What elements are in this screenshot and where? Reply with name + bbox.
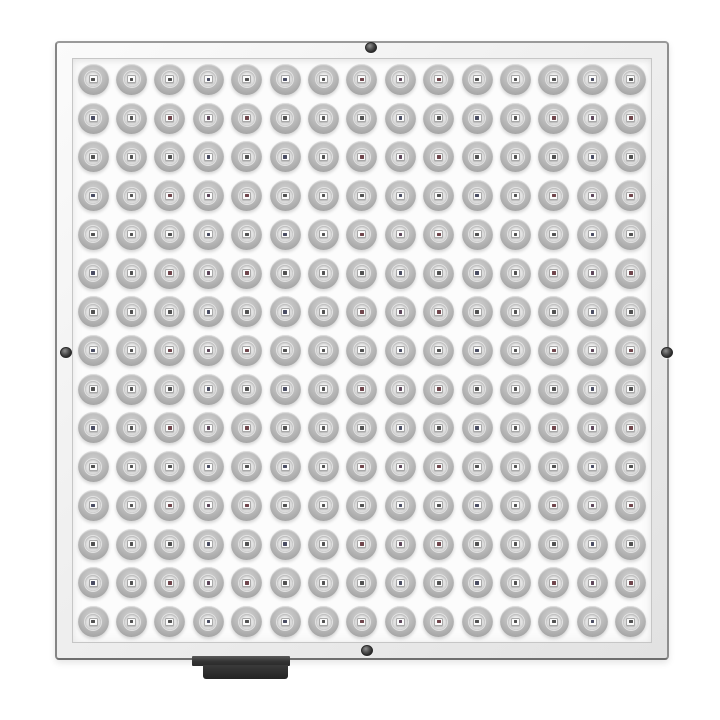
led-reflector-cup [231, 219, 262, 250]
led-well [546, 149, 562, 165]
led-cell [74, 409, 112, 448]
led-reflector-cup [538, 258, 569, 289]
led-cell [420, 254, 458, 293]
led-reflector-cup [615, 606, 646, 637]
led-chip [319, 540, 328, 548]
led-chip-die [168, 504, 172, 508]
led-chip [281, 114, 290, 122]
led-chip [242, 192, 251, 200]
led-chip-die [591, 194, 595, 198]
led-cell [573, 331, 611, 370]
led-chip [242, 346, 251, 354]
led-well [469, 71, 485, 87]
led-cell [535, 60, 573, 99]
led-chip [242, 153, 251, 161]
led-chip-die [283, 504, 287, 508]
led-well [508, 110, 524, 126]
led-cell [228, 254, 266, 293]
led-cell [420, 215, 458, 254]
led-chip-die [322, 620, 326, 624]
led-reflector-cup [270, 412, 301, 443]
led-well [431, 420, 447, 436]
led-chip-die [437, 620, 441, 624]
led-well [85, 342, 101, 358]
led-well [546, 497, 562, 513]
led-cell [304, 447, 342, 486]
led-chip [396, 424, 405, 432]
led-reflector-cup [231, 296, 262, 327]
led-well [85, 226, 101, 242]
led-chip-die [552, 542, 556, 546]
led-well [162, 381, 178, 397]
led-well [584, 381, 600, 397]
led-reflector-cup [270, 567, 301, 598]
led-cell [381, 331, 419, 370]
led-chip [204, 540, 213, 548]
led-reflector-cup [78, 64, 109, 95]
led-chip [434, 192, 443, 200]
led-cell [496, 331, 534, 370]
led-reflector-cup [270, 103, 301, 134]
led-reflector-cup [500, 529, 531, 560]
led-cell [189, 176, 227, 215]
led-reflector-cup [500, 103, 531, 134]
led-chip-die [207, 620, 211, 624]
led-cell [535, 602, 573, 641]
led-reflector-cup [154, 567, 185, 598]
led-chip-die [399, 194, 403, 198]
led-chip [396, 153, 405, 161]
led-well [431, 71, 447, 87]
led-reflector-cup [385, 180, 416, 211]
led-reflector-cup [193, 64, 224, 95]
led-cell [612, 602, 650, 641]
led-chip [204, 579, 213, 587]
led-well [200, 536, 216, 552]
led-cell [612, 176, 650, 215]
led-reflector-cup [500, 180, 531, 211]
led-chip [127, 75, 136, 83]
led-reflector-cup [615, 258, 646, 289]
led-chip [473, 424, 482, 432]
led-reflector-cup [577, 606, 608, 637]
led-reflector-cup [500, 296, 531, 327]
led-well [200, 110, 216, 126]
led-cell [496, 215, 534, 254]
led-well [354, 575, 370, 591]
led-well [277, 71, 293, 87]
led-well [623, 575, 639, 591]
led-reflector-cup [154, 451, 185, 482]
led-chip-die [629, 426, 633, 430]
led-chip [281, 385, 290, 393]
led-well [316, 265, 332, 281]
led-chip-die [475, 504, 479, 508]
led-chip-die [245, 426, 249, 430]
led-reflector-cup [116, 141, 147, 172]
led-reflector-cup [231, 258, 262, 289]
led-chip-die [591, 233, 595, 237]
led-chip-die [207, 155, 211, 159]
led-well [239, 497, 255, 513]
led-well [623, 149, 639, 165]
led-cell [304, 486, 342, 525]
led-chip [511, 463, 520, 471]
led-well [316, 614, 332, 630]
led-well [431, 304, 447, 320]
led-cell [381, 137, 419, 176]
led-chip-die [245, 155, 249, 159]
led-reflector-cup [308, 412, 339, 443]
led-chip-die [91, 504, 95, 508]
led-chip-die [629, 194, 633, 198]
led-chip-die [322, 78, 326, 82]
led-reflector-cup [231, 335, 262, 366]
led-chip-die [475, 349, 479, 353]
led-chip [127, 618, 136, 626]
led-cell [458, 137, 496, 176]
led-reflector-cup [423, 412, 454, 443]
led-well [584, 110, 600, 126]
led-chip-die [245, 233, 249, 237]
led-well [316, 149, 332, 165]
led-chip [281, 540, 290, 548]
led-cell [496, 370, 534, 409]
led-chip [204, 463, 213, 471]
led-well [162, 536, 178, 552]
led-well [508, 304, 524, 320]
led-chip [357, 153, 366, 161]
led-chip [319, 192, 328, 200]
led-reflector-cup [116, 64, 147, 95]
led-cell [420, 99, 458, 138]
led-reflector-cup [193, 490, 224, 521]
led-chip [89, 230, 98, 238]
led-cell [112, 564, 150, 603]
led-reflector-cup [615, 296, 646, 327]
led-chip [511, 192, 520, 200]
led-cell [496, 525, 534, 564]
led-chip-die [91, 620, 95, 624]
led-chip-die [91, 233, 95, 237]
led-chip-die [399, 581, 403, 585]
led-chip-die [552, 349, 556, 353]
led-chip [588, 192, 597, 200]
led-well [392, 304, 408, 320]
led-chip [357, 346, 366, 354]
led-chip [127, 501, 136, 509]
led-cell [458, 254, 496, 293]
led-reflector-cup [615, 374, 646, 405]
led-well [431, 342, 447, 358]
led-chip-die [360, 78, 364, 82]
led-cell [151, 215, 189, 254]
led-chip-die [399, 155, 403, 159]
led-cell [573, 99, 611, 138]
led-reflector-cup [270, 141, 301, 172]
led-chip-die [591, 426, 595, 430]
led-chip-die [322, 426, 326, 430]
led-chip [434, 114, 443, 122]
led-reflector-cup [577, 141, 608, 172]
led-chip [434, 463, 443, 471]
led-well [546, 614, 562, 630]
led-reflector-cup [270, 451, 301, 482]
led-chip [396, 385, 405, 393]
led-chip [165, 579, 174, 587]
led-well [239, 381, 255, 397]
led-cell [189, 331, 227, 370]
led-chip [165, 463, 174, 471]
led-well [469, 342, 485, 358]
led-chip-die [591, 620, 595, 624]
led-reflector-cup [577, 451, 608, 482]
led-cell [535, 525, 573, 564]
led-cell [535, 292, 573, 331]
led-chip-die [437, 310, 441, 314]
led-chip [127, 192, 136, 200]
led-chip [511, 75, 520, 83]
led-well [431, 614, 447, 630]
led-cell [112, 176, 150, 215]
led-chip-die [629, 78, 633, 82]
led-chip-die [360, 581, 364, 585]
led-well [239, 265, 255, 281]
led-chip [549, 424, 558, 432]
led-chip-die [437, 465, 441, 469]
led-well [546, 226, 562, 242]
led-cell [343, 331, 381, 370]
led-chip [434, 230, 443, 238]
led-chip-die [437, 155, 441, 159]
led-reflector-cup [78, 529, 109, 560]
led-chip [281, 308, 290, 316]
led-chip [165, 75, 174, 83]
led-cell [151, 525, 189, 564]
led-cell [458, 370, 496, 409]
led-reflector-cup [270, 374, 301, 405]
led-well [392, 188, 408, 204]
led-chip [473, 230, 482, 238]
led-cell [228, 602, 266, 641]
led-chip-die [130, 310, 134, 314]
led-chip-die [207, 349, 211, 353]
led-chip-die [514, 349, 518, 353]
led-chip-die [514, 116, 518, 120]
led-reflector-cup [538, 103, 569, 134]
led-chip [127, 153, 136, 161]
led-chip [549, 114, 558, 122]
led-chip [242, 385, 251, 393]
led-chip [357, 269, 366, 277]
led-reflector-cup [308, 103, 339, 134]
led-chip [473, 385, 482, 393]
led-chip-die [437, 387, 441, 391]
led-well [239, 110, 255, 126]
led-well [239, 575, 255, 591]
led-reflector-cup [538, 296, 569, 327]
led-cell [458, 447, 496, 486]
led-chip [549, 501, 558, 509]
led-well [162, 110, 178, 126]
led-reflector-cup [385, 567, 416, 598]
led-cell [381, 447, 419, 486]
led-cell [612, 525, 650, 564]
led-chip [242, 114, 251, 122]
led-well [623, 110, 639, 126]
led-cell [74, 60, 112, 99]
led-chip-die [591, 465, 595, 469]
led-well [316, 188, 332, 204]
led-well [124, 149, 140, 165]
led-chip [319, 114, 328, 122]
led-cell [612, 370, 650, 409]
led-chip-die [399, 387, 403, 391]
led-well [584, 420, 600, 436]
led-chip-die [514, 194, 518, 198]
led-reflector-cup [577, 374, 608, 405]
led-chip-die [514, 310, 518, 314]
led-chip-die [514, 271, 518, 275]
led-well [277, 459, 293, 475]
led-chip-die [245, 620, 249, 624]
led-chip [165, 424, 174, 432]
led-chip [204, 424, 213, 432]
led-well [584, 342, 600, 358]
led-cell [151, 409, 189, 448]
led-well [508, 381, 524, 397]
led-well [316, 226, 332, 242]
led-chip-die [475, 620, 479, 624]
led-well [392, 614, 408, 630]
led-chip-die [207, 387, 211, 391]
led-well [623, 71, 639, 87]
led-reflector-cup [462, 412, 493, 443]
led-reflector-cup [615, 180, 646, 211]
led-chip [281, 192, 290, 200]
led-reflector-cup [231, 529, 262, 560]
led-reflector-cup [346, 64, 377, 95]
led-chip [434, 540, 443, 548]
led-chip-die [245, 310, 249, 314]
led-well [316, 536, 332, 552]
led-reflector-cup [116, 451, 147, 482]
led-chip-die [130, 233, 134, 237]
led-well [623, 342, 639, 358]
led-well [200, 420, 216, 436]
led-well [431, 536, 447, 552]
led-well [392, 226, 408, 242]
led-cell [420, 447, 458, 486]
led-chip-die [207, 542, 211, 546]
led-chip [549, 463, 558, 471]
led-reflector-cup [231, 374, 262, 405]
led-reflector-cup [154, 141, 185, 172]
led-chip [626, 269, 635, 277]
led-well [546, 342, 562, 358]
led-reflector-cup [308, 567, 339, 598]
led-well [239, 420, 255, 436]
led-well [162, 188, 178, 204]
led-well [508, 226, 524, 242]
led-cell [535, 409, 573, 448]
led-chip-die [207, 194, 211, 198]
led-cell [74, 215, 112, 254]
led-chip-die [322, 542, 326, 546]
led-cell [304, 99, 342, 138]
led-chip [511, 230, 520, 238]
led-chip [626, 540, 635, 548]
led-well [623, 304, 639, 320]
led-cell [304, 215, 342, 254]
led-chip [357, 230, 366, 238]
led-well [200, 342, 216, 358]
led-chip-die [283, 78, 287, 82]
led-reflector-cup [500, 141, 531, 172]
led-well [200, 381, 216, 397]
led-reflector-cup [385, 103, 416, 134]
led-reflector-cup [308, 490, 339, 521]
led-cell [228, 331, 266, 370]
led-reflector-cup [500, 335, 531, 366]
led-reflector-cup [116, 374, 147, 405]
led-well [392, 149, 408, 165]
led-well [239, 71, 255, 87]
led-chip-die [399, 310, 403, 314]
led-chip [396, 346, 405, 354]
led-well [162, 459, 178, 475]
led-cell [458, 409, 496, 448]
led-well [85, 71, 101, 87]
led-cell [151, 292, 189, 331]
led-chip [281, 618, 290, 626]
led-reflector-cup [270, 219, 301, 250]
led-chip [127, 579, 136, 587]
led-well [469, 149, 485, 165]
led-reflector-cup [193, 296, 224, 327]
led-cell [573, 564, 611, 603]
led-chip-die [591, 116, 595, 120]
led-cell [304, 602, 342, 641]
led-chip-die [130, 426, 134, 430]
led-reflector-cup [154, 490, 185, 521]
led-chip [242, 579, 251, 587]
led-chip [204, 618, 213, 626]
led-well [277, 497, 293, 513]
led-chip [396, 540, 405, 548]
led-chip [549, 192, 558, 200]
led-cell [266, 292, 304, 331]
led-well [392, 420, 408, 436]
led-well [431, 497, 447, 513]
led-chip [511, 308, 520, 316]
led-cell [266, 409, 304, 448]
led-chip [434, 424, 443, 432]
led-cell [535, 370, 573, 409]
led-reflector-cup [577, 64, 608, 95]
led-reflector-cup [154, 529, 185, 560]
led-chip [626, 579, 635, 587]
led-cell [381, 409, 419, 448]
led-chip-die [91, 581, 95, 585]
led-cell [304, 331, 342, 370]
led-chip-die [322, 271, 326, 275]
led-cell [496, 60, 534, 99]
led-chip [127, 540, 136, 548]
led-chip-die [629, 116, 633, 120]
led-reflector-cup [308, 180, 339, 211]
led-well [85, 381, 101, 397]
